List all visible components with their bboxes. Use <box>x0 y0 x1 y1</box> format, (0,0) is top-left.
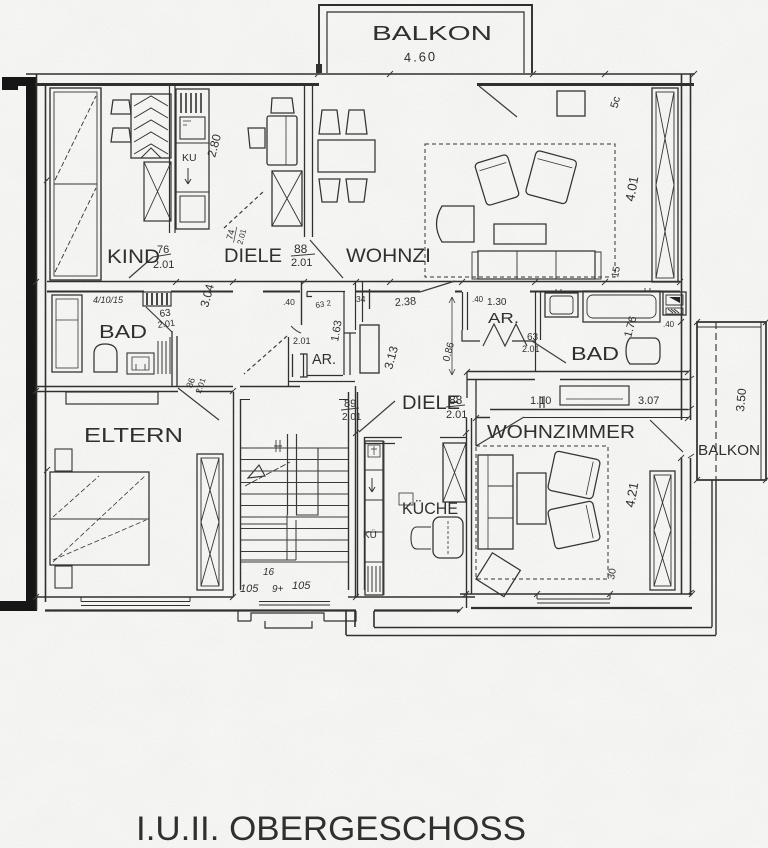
svg-text:2.01: 2.01 <box>153 259 174 271</box>
svg-text:KÜ: KÜ <box>363 529 377 541</box>
svg-text:88: 88 <box>449 393 463 407</box>
svg-text:3.13: 3.13 <box>381 344 401 370</box>
svg-text:0.86: 0.86 <box>441 341 457 363</box>
svg-text:74: 74 <box>224 228 236 240</box>
svg-text:3.07: 3.07 <box>638 395 659 407</box>
svg-text:105: 105 <box>240 583 259 595</box>
svg-text:.40: .40 <box>283 297 295 307</box>
svg-text:15: 15 <box>610 265 623 278</box>
svg-text:4.60: 4.60 <box>404 49 438 65</box>
svg-text:105: 105 <box>292 580 311 592</box>
svg-text:3.04: 3.04 <box>197 282 217 308</box>
svg-text:KÜCHE: KÜCHE <box>402 499 458 518</box>
svg-text:KU: KU <box>182 152 197 164</box>
svg-text:WOHNZI: WOHNZI <box>346 246 431 267</box>
svg-text:1.63: 1.63 <box>329 319 345 342</box>
svg-text:2.01: 2.01 <box>446 409 467 421</box>
svg-text:2.38: 2.38 <box>394 296 416 309</box>
svg-text:2.01: 2.01 <box>293 336 311 346</box>
svg-text:.40: .40 <box>472 295 484 304</box>
svg-text:.40: .40 <box>663 320 675 329</box>
svg-text:AR.: AR. <box>488 310 519 327</box>
svg-text:BAD: BAD <box>571 344 619 364</box>
svg-text:30: 30 <box>606 567 619 580</box>
svg-text:ELTERN: ELTERN <box>84 425 183 447</box>
svg-text:1.30: 1.30 <box>487 297 507 308</box>
svg-text:1.10: 1.10 <box>530 395 551 407</box>
svg-text:2.01: 2.01 <box>291 257 312 269</box>
svg-text:2.01: 2.01 <box>342 412 362 423</box>
svg-text:16: 16 <box>263 567 275 578</box>
svg-text:2.01: 2.01 <box>522 344 540 354</box>
svg-text:AR.: AR. <box>312 351 336 368</box>
svg-text:4.01: 4.01 <box>622 175 641 203</box>
svg-text:88: 88 <box>294 242 308 256</box>
svg-text:5c: 5c <box>608 95 623 110</box>
svg-text:63: 63 <box>527 332 539 343</box>
svg-text:63 2: 63 2 <box>315 298 332 310</box>
svg-text:WOHNZIMMER: WOHNZIMMER <box>487 422 635 442</box>
svg-text:2.01: 2.01 <box>157 318 176 330</box>
svg-text:BALKON: BALKON <box>372 23 492 45</box>
svg-text:BALKON: BALKON <box>698 442 760 459</box>
svg-text:9+: 9+ <box>272 584 284 595</box>
svg-text:3.50: 3.50 <box>733 387 749 412</box>
svg-text:DIELE: DIELE <box>224 246 282 267</box>
svg-text:1.76: 1.76 <box>622 315 639 339</box>
svg-text:2.01: 2.01 <box>235 228 248 246</box>
svg-text:4/10/15: 4/10/15 <box>93 295 124 305</box>
svg-text:BAD: BAD <box>99 322 147 342</box>
svg-text:2.80: 2.80 <box>204 132 224 158</box>
svg-text:34: 34 <box>356 294 366 304</box>
svg-text:I.U.II. OBERGESCHOSS: I.U.II. OBERGESCHOSS <box>136 810 526 848</box>
svg-text:4.21: 4.21 <box>622 481 641 509</box>
